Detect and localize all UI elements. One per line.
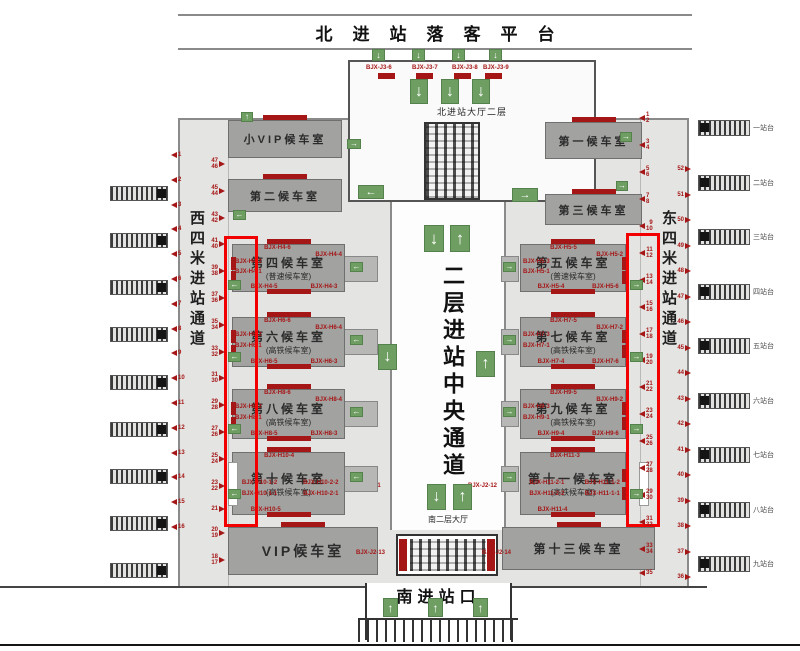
platform-end-cap bbox=[700, 396, 709, 405]
arrow-glyph: ← bbox=[353, 473, 361, 481]
waiting-room-subtitle: (普速候车室) bbox=[266, 271, 311, 282]
arrow-glyph: ↓ bbox=[433, 489, 441, 505]
red-arrow-icon bbox=[639, 115, 645, 121]
gate-number-marker: 9 10 bbox=[639, 220, 653, 232]
gate-label: BJX-H11-2-1 bbox=[529, 480, 564, 486]
left-arrow-sign: ← bbox=[350, 407, 363, 417]
red-arrow-icon bbox=[639, 196, 645, 202]
red-arrow-icon bbox=[171, 375, 177, 381]
waiting-room-name: 第三候车室 bbox=[559, 202, 629, 218]
red-arrow-icon bbox=[171, 276, 177, 282]
gate-label: BJX-H9-1 bbox=[523, 415, 550, 421]
gate-label: BJX-J3-8 bbox=[452, 65, 478, 71]
red-arrow-icon bbox=[171, 152, 177, 158]
door-bar bbox=[557, 522, 601, 527]
gate-number-marker: 43 42 bbox=[211, 212, 225, 224]
red-arrow-icon bbox=[219, 506, 225, 512]
gate-number-marker: 44 bbox=[677, 370, 691, 376]
platform-bar bbox=[698, 284, 750, 300]
red-arrow-icon bbox=[685, 447, 691, 453]
gate-number-marker: 39 38 bbox=[211, 265, 225, 277]
door-bar bbox=[263, 174, 307, 179]
arrow-glyph: ← bbox=[353, 263, 361, 271]
arrow-glyph: ← bbox=[231, 353, 239, 361]
red-arrow-icon bbox=[685, 294, 691, 300]
right-arrow-sign: → bbox=[512, 188, 538, 202]
arrow-glyph: ↓ bbox=[430, 230, 439, 247]
platform-bar bbox=[110, 516, 168, 531]
platform-end-cap bbox=[157, 425, 166, 434]
platform-bar bbox=[110, 327, 168, 342]
gate-label: BJX-H7-3 bbox=[523, 332, 550, 338]
platform-end-cap bbox=[700, 178, 709, 187]
arrow-glyph: ↑ bbox=[245, 113, 249, 121]
platform-bar bbox=[698, 120, 750, 136]
gate-number-marker: 45 44 bbox=[211, 185, 225, 197]
gate-label: BJX-H10-2-2 bbox=[303, 480, 338, 486]
door-bar bbox=[267, 239, 311, 244]
gate-label: BJX-H8-6 bbox=[264, 390, 291, 396]
gate-number-marker: 37 36 bbox=[211, 292, 225, 304]
red-arrow-icon bbox=[685, 268, 691, 274]
red-arrow-icon bbox=[219, 456, 225, 462]
door-bar bbox=[551, 312, 595, 317]
waiting-room-subtitle: (高铁候车室) bbox=[266, 417, 311, 428]
red-arrow-icon bbox=[171, 177, 177, 183]
down-arrow-sign: ↓ bbox=[378, 344, 397, 370]
red-arrow-icon bbox=[219, 241, 225, 247]
gate-number-marker: 25 26 bbox=[639, 435, 653, 447]
right-arrow-sign: → bbox=[503, 407, 516, 417]
south-wall bbox=[0, 586, 366, 588]
arrow-glyph: → bbox=[633, 490, 641, 498]
gate-number-marker: 33 34 bbox=[639, 543, 653, 555]
waiting-room-name: 第十三候车室 bbox=[533, 540, 623, 557]
gate-label: BJX-H5-2 bbox=[596, 252, 623, 258]
gate-number-marker: 20 19 bbox=[211, 527, 225, 539]
platform-row: 九站台 bbox=[698, 556, 794, 572]
gate-number-marker: 9 bbox=[171, 350, 181, 356]
waiting-room-subtitle: (普速候车室) bbox=[550, 271, 595, 282]
door-bar bbox=[267, 312, 311, 317]
north-hall-name: 北进站大厅二层 bbox=[350, 105, 594, 118]
red-arrow-icon bbox=[219, 530, 225, 536]
waiting-room-subtitle: (高铁候车室) bbox=[266, 345, 311, 356]
arrow-glyph: ← bbox=[353, 336, 361, 344]
arrow-glyph: ← bbox=[231, 425, 239, 433]
platform-end-cap bbox=[700, 123, 709, 132]
gate-label: BJX-H8-4 bbox=[315, 397, 342, 403]
gate-number-marker: 31 30 bbox=[211, 372, 225, 384]
platform-bar bbox=[698, 393, 750, 409]
left-arrow-sign: ← bbox=[228, 424, 241, 434]
down-arrow-sign: ↓ bbox=[472, 79, 490, 104]
gate-number-marker: 15 bbox=[171, 499, 185, 505]
platform-bar bbox=[698, 229, 750, 245]
red-arrow-icon bbox=[171, 251, 177, 257]
platform-end-cap bbox=[700, 287, 709, 296]
gate-label: BJX-H5-5 bbox=[550, 245, 577, 251]
platform-end-cap bbox=[700, 232, 709, 241]
door-bar bbox=[399, 539, 407, 571]
central-corridor-title: 二层进站中央通道 bbox=[436, 264, 468, 480]
arrow-glyph: → bbox=[506, 408, 514, 416]
down-arrow-sign: ↓ bbox=[410, 79, 428, 104]
waiting-room-name: 第二候车室 bbox=[250, 188, 320, 204]
door-bar bbox=[551, 447, 595, 452]
red-arrow-icon bbox=[639, 169, 645, 175]
platform-label: 九站台 bbox=[753, 559, 774, 569]
gate-label: BJX-H11-1-2 bbox=[585, 480, 620, 486]
arrow-glyph: ↑ bbox=[482, 356, 490, 372]
gate-label: BJX-J2-12 bbox=[468, 483, 497, 489]
down-arrow-sign: ↓ bbox=[452, 49, 465, 61]
gate-number-marker: 12 bbox=[171, 425, 185, 431]
north-dropoff-band: 北进站落客平台 bbox=[178, 14, 692, 50]
arrow-glyph: ↑ bbox=[459, 489, 467, 505]
gate-label: BJX-H4-3 bbox=[311, 284, 338, 290]
gate-label: BJX-J3-6 bbox=[366, 65, 392, 71]
gate-number-marker: 45 bbox=[677, 345, 691, 351]
arrow-glyph: ↑ bbox=[456, 230, 465, 247]
red-arrow-icon bbox=[639, 465, 645, 471]
platform-end-cap bbox=[700, 505, 709, 514]
gate-number-marker: 41 40 bbox=[211, 238, 225, 250]
platform-bar bbox=[698, 502, 750, 518]
door-bar bbox=[263, 115, 307, 120]
platform-end-cap bbox=[157, 236, 166, 245]
waiting-room: 小VIP候车室 bbox=[228, 120, 342, 158]
red-arrow-icon bbox=[171, 301, 177, 307]
red-arrow-icon bbox=[639, 331, 645, 337]
gate-label: BJX-H6-4 bbox=[315, 325, 342, 331]
red-arrow-icon bbox=[171, 524, 177, 530]
up-arrow-sign: ↑ bbox=[428, 598, 443, 617]
arrow-glyph: ↑ bbox=[388, 602, 394, 614]
gate-number-marker: 31 32 bbox=[639, 516, 653, 528]
arrow-glyph: ← bbox=[366, 187, 377, 198]
right-arrow-sign: → bbox=[630, 280, 643, 290]
red-arrow-icon bbox=[685, 523, 691, 529]
red-arrow-icon bbox=[639, 411, 645, 417]
arrow-glyph: ↑ bbox=[433, 602, 439, 614]
red-arrow-icon bbox=[171, 400, 177, 406]
red-arrow-icon bbox=[685, 345, 691, 351]
red-arrow-icon bbox=[219, 161, 225, 167]
waiting-room-subtitle: (高铁候车室) bbox=[550, 345, 595, 356]
gate-number-marker: 47 46 bbox=[211, 158, 225, 170]
platform-label: 五站台 bbox=[753, 341, 774, 351]
arrow-glyph: ← bbox=[231, 490, 239, 498]
gate-number-marker: 11 12 bbox=[639, 247, 653, 259]
red-arrow-icon bbox=[685, 192, 691, 198]
station-floorplan: 北进站落客平台 一站台 二站台 三站台 四站台 bbox=[0, 0, 800, 651]
waiting-room: 第十一候车室 (高铁候车室) BJX-H11-3 BJX-H11-2-1 BJX… bbox=[520, 452, 626, 515]
gate-number-marker: 21 bbox=[211, 506, 225, 512]
gate-number-marker: 52 bbox=[677, 166, 691, 172]
east-inner-gate-numbers: 1 23 45 67 89 1011 1213 1415 1617 1819 2… bbox=[639, 112, 659, 576]
red-arrow-icon bbox=[171, 226, 177, 232]
gate-number-marker: 1 2 bbox=[639, 112, 649, 124]
red-arrow-icon bbox=[639, 250, 645, 256]
gate-number-marker: 14 bbox=[171, 474, 185, 480]
platform-bar bbox=[110, 422, 168, 437]
platform-row: 一站台 bbox=[698, 120, 794, 136]
red-arrow-icon bbox=[171, 450, 177, 456]
platform-end-cap bbox=[157, 519, 166, 528]
gate-label: BJX-J2-14 bbox=[482, 550, 511, 556]
left-arrow-sign: ← bbox=[350, 472, 363, 482]
platform-bar bbox=[110, 186, 168, 201]
gate-label: BJX-H5-3 bbox=[523, 259, 550, 265]
door-bar bbox=[572, 189, 616, 194]
gate-label: BJX-H6-3 bbox=[311, 359, 338, 365]
red-arrow-icon bbox=[171, 350, 177, 356]
red-arrow-icon bbox=[219, 429, 225, 435]
gate-number-marker: 5 6 bbox=[639, 166, 649, 178]
waiting-room-subtitle: (高铁候车室) bbox=[550, 417, 595, 428]
waiting-room: 第七候车室 (高铁候车室) BJX-H7-5 BJX-H7-2 BJX-H7-3… bbox=[520, 317, 626, 367]
platform-bar bbox=[698, 175, 750, 191]
waiting-room-name: 小VIP候车室 bbox=[244, 131, 327, 147]
arrow-glyph: ↓ bbox=[456, 51, 461, 60]
red-arrow-icon bbox=[219, 375, 225, 381]
waiting-room-name: 第一候车室 bbox=[559, 133, 629, 149]
gate-label: BJX-H4-6 bbox=[264, 245, 291, 251]
platform-bar bbox=[110, 469, 168, 484]
gate-label: BJX-H10-4 bbox=[264, 453, 294, 459]
platform-bar bbox=[698, 556, 750, 572]
red-arrow-icon bbox=[685, 166, 691, 172]
gate-label: BJX-H11-3 bbox=[550, 453, 580, 459]
waiting-room: 第五候车室 (普速候车室) BJX-H5-5 BJX-H5-2 BJX-H5-3… bbox=[520, 244, 626, 292]
gate-number-marker: 40 bbox=[677, 472, 691, 478]
right-arrow-sign: → bbox=[616, 181, 628, 191]
gate-number-marker: 42 bbox=[677, 421, 691, 427]
red-arrow-icon bbox=[639, 519, 645, 525]
waiting-room: 第九候车室 (高铁候车室) BJX-H9-5 BJX-H9-2 BJX-H9-3… bbox=[520, 389, 626, 439]
red-arrow-icon bbox=[639, 438, 645, 444]
gate-label: BJX-H9-2 bbox=[596, 397, 623, 403]
arrow-glyph: → bbox=[506, 336, 514, 344]
red-arrow-icon bbox=[171, 202, 177, 208]
platform-label: 三站台 bbox=[753, 232, 774, 242]
gate-number-marker: 27 26 bbox=[211, 426, 225, 438]
gate-number-marker: 29 28 bbox=[211, 399, 225, 411]
right-arrow-sign: → bbox=[630, 424, 643, 434]
gate-number-marker: 8 bbox=[171, 326, 181, 332]
waiting-room: 第二候车室 bbox=[228, 179, 342, 212]
red-arrow-icon bbox=[685, 396, 691, 402]
door-bar bbox=[572, 117, 616, 122]
platform-end-cap bbox=[700, 559, 709, 568]
gate-label: BJX-H7-6 bbox=[592, 359, 619, 365]
up-arrow-sign: ↑ bbox=[241, 112, 253, 122]
arrow-glyph: → bbox=[618, 182, 626, 190]
turnstile-row bbox=[358, 618, 518, 642]
left-arrow-sign: ← bbox=[350, 262, 363, 272]
red-arrow-icon bbox=[219, 188, 225, 194]
left-arrow-sign: ← bbox=[228, 280, 241, 290]
gate-label: BJX-H6-6 bbox=[264, 318, 291, 324]
red-arrow-icon bbox=[219, 268, 225, 274]
left-arrow-sign: ← bbox=[350, 335, 363, 345]
platform-row: 四站台 bbox=[698, 284, 794, 300]
east-mid-gate-numbers: 5251504948474645444342414039383736 bbox=[676, 166, 691, 580]
gate-label: BJX-H5-6 bbox=[592, 284, 619, 290]
south-hall-label: 南二层大厅 bbox=[392, 514, 504, 525]
red-arrow-icon bbox=[639, 570, 645, 576]
platform-end-cap bbox=[157, 378, 166, 387]
waiting-room-name: VIP候车室 bbox=[262, 541, 345, 561]
gate-number-marker: 1 bbox=[171, 152, 181, 158]
arrow-glyph: ↓ bbox=[415, 84, 423, 100]
platform-bar bbox=[110, 280, 168, 295]
gate-number-marker: 49 bbox=[677, 243, 691, 249]
gate-label: BJX-H8-3 bbox=[311, 431, 338, 437]
platform-end-cap bbox=[157, 472, 166, 481]
gate-number-marker: 13 bbox=[171, 450, 185, 456]
door-bar bbox=[267, 447, 311, 452]
red-arrow-icon bbox=[171, 425, 177, 431]
red-arrow-icon bbox=[219, 322, 225, 328]
gate-number-marker: 23 24 bbox=[639, 408, 653, 420]
gate-label: BJX-J3-7 bbox=[412, 65, 438, 71]
down-arrow-sign: ↓ bbox=[372, 49, 385, 61]
platform-bar bbox=[698, 338, 750, 354]
platform-bar bbox=[110, 375, 168, 390]
gate-number-marker: 39 bbox=[677, 498, 691, 504]
gate-label: BJX-H5-4 bbox=[538, 284, 565, 290]
escalator-block bbox=[410, 539, 486, 571]
door-bar bbox=[551, 239, 595, 244]
gate-number-marker: 27 28 bbox=[639, 462, 653, 474]
gate-number-marker: 2 bbox=[171, 177, 181, 183]
red-arrow-icon bbox=[219, 295, 225, 301]
red-arrow-icon bbox=[639, 304, 645, 310]
gate-number-marker: 5 bbox=[171, 251, 181, 257]
red-arrow-icon bbox=[219, 215, 225, 221]
arrow-glyph: ↓ bbox=[477, 84, 485, 100]
up-arrow-sign: ↑ bbox=[453, 484, 472, 510]
red-arrow-icon bbox=[685, 421, 691, 427]
arrow-glyph: → bbox=[622, 133, 630, 141]
red-arrow-icon bbox=[685, 472, 691, 478]
gate-label: BJX-H7-4 bbox=[538, 359, 565, 365]
red-arrow-icon bbox=[219, 483, 225, 489]
door-bar bbox=[267, 384, 311, 389]
gate-label: BJX-H11-2-2 bbox=[529, 491, 564, 497]
up-arrow-sign: ↑ bbox=[476, 351, 495, 377]
door-bar bbox=[378, 73, 395, 79]
gate-number-marker: 38 bbox=[677, 523, 691, 529]
gate-number-marker: 37 bbox=[677, 549, 691, 555]
gate-number-marker: 17 18 bbox=[639, 328, 653, 340]
arrow-glyph: ← bbox=[231, 281, 239, 289]
platform-end-cap bbox=[700, 341, 709, 350]
arrow-glyph: → bbox=[350, 140, 358, 148]
gate-number-marker: 21 22 bbox=[639, 381, 653, 393]
escalator-block bbox=[424, 122, 480, 200]
platform-bar bbox=[110, 233, 168, 248]
red-arrow-icon bbox=[685, 370, 691, 376]
platform-bar bbox=[110, 563, 168, 578]
down-arrow-sign: ↓ bbox=[412, 49, 425, 61]
right-arrow-sign: → bbox=[503, 335, 516, 345]
platform-bar bbox=[698, 447, 750, 463]
page-bottom-rule bbox=[0, 644, 800, 646]
gate-number-marker: 18 17 bbox=[211, 554, 225, 566]
platform-label: 一站台 bbox=[753, 123, 774, 133]
up-arrow-sign: ↑ bbox=[473, 598, 488, 617]
platform-row: 五站台 bbox=[698, 338, 794, 354]
north-dropoff-title: 北进站落客平台 bbox=[296, 20, 575, 45]
red-arrow-icon bbox=[639, 384, 645, 390]
gate-label: BJX-H11-4 bbox=[538, 507, 568, 513]
red-arrow-icon bbox=[219, 557, 225, 563]
up-arrow-sign: ↑ bbox=[450, 225, 470, 252]
platform-row: 二站台 bbox=[698, 175, 794, 191]
left-arrow-sign: ← bbox=[228, 352, 241, 362]
platform-label: 六站台 bbox=[753, 396, 774, 406]
red-arrow-icon bbox=[171, 474, 177, 480]
east-platforms: 一站台 二站台 三站台 四站台 五站台 六站台 七站台 八站台 bbox=[698, 120, 794, 572]
gate-label: BJX-H9-4 bbox=[538, 431, 565, 437]
red-arrow-icon bbox=[685, 243, 691, 249]
gate-number-marker: 41 bbox=[677, 447, 691, 453]
down-arrow-sign: ↓ bbox=[441, 79, 459, 104]
gate-label: BJX-J3-9 bbox=[483, 65, 509, 71]
arrow-glyph: ↓ bbox=[384, 349, 392, 365]
gate-number-marker: 10 bbox=[171, 375, 185, 381]
red-arrow-icon bbox=[171, 326, 177, 332]
arrow-glyph: ← bbox=[236, 211, 244, 219]
gate-label: BJX-H7-2 bbox=[596, 325, 623, 331]
arrow-glyph: → bbox=[520, 190, 531, 201]
red-arrow-icon bbox=[639, 142, 645, 148]
arrow-glyph: → bbox=[633, 281, 641, 289]
arrow-glyph: → bbox=[506, 473, 514, 481]
gate-number-marker: 43 bbox=[677, 396, 691, 402]
right-arrow-sign: → bbox=[620, 132, 632, 142]
arrow-glyph: → bbox=[506, 263, 514, 271]
gate-label: BJX-H9-5 bbox=[550, 390, 577, 396]
platform-row: 三站台 bbox=[698, 229, 794, 245]
right-arrow-sign: → bbox=[347, 139, 361, 149]
gate-label: BJX-H9-3 bbox=[523, 404, 550, 410]
red-arrow-icon bbox=[639, 223, 645, 229]
platform-end-cap bbox=[157, 189, 166, 198]
gate-label: BJX-H11-1-1 bbox=[585, 491, 620, 497]
gate-label: BJX-H9-6 bbox=[592, 431, 619, 437]
gate-number-marker: 48 bbox=[677, 268, 691, 274]
gate-number-marker: 23 22 bbox=[211, 480, 225, 492]
right-arrow-sign: → bbox=[630, 352, 643, 362]
arrow-glyph: ↓ bbox=[416, 51, 421, 60]
west-platforms bbox=[110, 186, 170, 578]
up-arrow-sign: ↑ bbox=[383, 598, 398, 617]
arrow-glyph: ← bbox=[353, 408, 361, 416]
gate-number-marker: 36 bbox=[677, 574, 691, 580]
right-arrow-sign: → bbox=[503, 262, 516, 272]
gate-label: BJX-H10-2-1 bbox=[303, 491, 338, 497]
down-arrow-sign: ↓ bbox=[424, 225, 444, 252]
west-inner-gate-numbers: 47 4645 4443 4241 4039 3837 3635 3433 32… bbox=[203, 158, 225, 566]
right-arrow-sign: → bbox=[630, 489, 643, 499]
gate-number-marker: 11 bbox=[171, 400, 184, 406]
arrow-glyph: ↓ bbox=[376, 51, 381, 60]
platform-end-cap bbox=[157, 566, 166, 575]
